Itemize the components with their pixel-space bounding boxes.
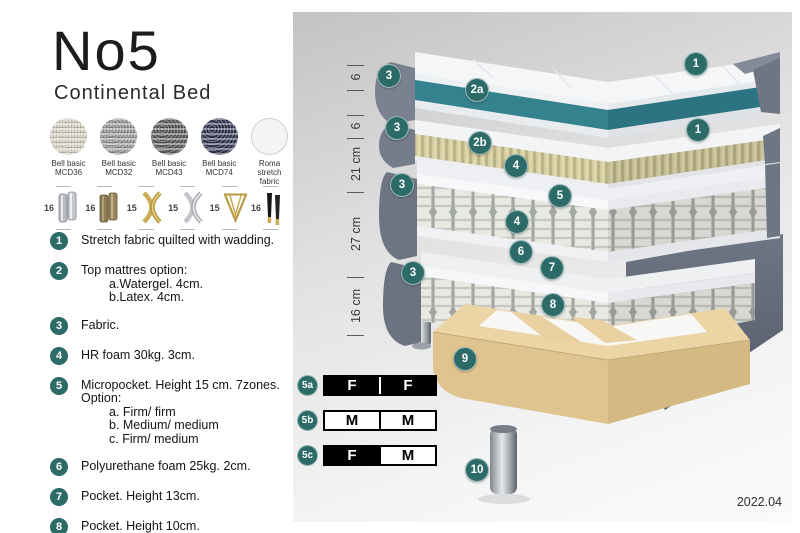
leg-option-tapered-black-gold: 16 xyxy=(251,184,290,232)
dimension-dash xyxy=(97,229,112,230)
dimension-dash xyxy=(263,186,278,187)
page: No5 Continental Bed Bell basicMCD36Bell … xyxy=(0,0,800,533)
leg-height-label: 15 xyxy=(210,203,220,213)
firmness-cell: F xyxy=(381,377,435,394)
feature-sub-option: a. Firm/ firm xyxy=(109,406,294,420)
fabric-swatch-circle xyxy=(251,118,288,155)
layer-marker-4: 4 xyxy=(504,154,528,178)
feature-number-badge: 1 xyxy=(50,232,68,250)
feature-main-text: Pocket. Height 10cm. xyxy=(81,520,200,533)
dimension-tick xyxy=(347,138,364,139)
dimension-label: 6 xyxy=(349,123,363,130)
dimension-dash xyxy=(180,186,195,187)
layer-marker-8: 8 xyxy=(541,293,565,317)
feature-number-badge: 7 xyxy=(50,488,68,506)
feature-sub-option: a.Watergel. 4cm. xyxy=(109,278,203,292)
dimension-dash xyxy=(56,229,71,230)
layer-marker-3: 3 xyxy=(401,261,425,285)
feature-text: Pocket. Height 13cm. xyxy=(81,488,200,506)
feature-text: Pocket. Height 10cm. xyxy=(81,518,200,533)
fabric-swatch-line2: MCD74 xyxy=(202,168,236,177)
fabric-swatch-line2: MCD36 xyxy=(51,168,85,177)
feature-number-badge: 8 xyxy=(50,518,68,533)
fabric-swatch-label: Bell basicMCD74 xyxy=(202,159,236,177)
leg-height-label: 15 xyxy=(168,203,178,213)
dimension-dash xyxy=(139,229,154,230)
fabric-swatches: Bell basicMCD36Bell basicMCD32Bell basic… xyxy=(46,118,292,186)
leg-height-label: 16 xyxy=(251,203,261,213)
dimension-dash xyxy=(139,186,154,187)
fabric-swatch-label: Bell basicMCD32 xyxy=(102,159,136,177)
fabric-swatch: Romastretch fabric xyxy=(247,118,292,186)
layer-marker-3: 3 xyxy=(390,173,414,197)
fabric-swatch-line2: MCD32 xyxy=(102,168,136,177)
firmness-cell: M xyxy=(325,412,379,429)
dimension-tick xyxy=(347,90,364,91)
dimension-dash xyxy=(222,186,237,187)
fabric-swatch-label: Bell basicMCD36 xyxy=(51,159,85,177)
feature-sub-option: c. Firm/ medium xyxy=(109,433,294,447)
feature-text: Stretch fabric quilted with wadding. xyxy=(81,232,274,250)
layer-marker-1: 1 xyxy=(684,52,708,76)
page-subtitle: Continental Bed xyxy=(54,82,211,105)
feature-number-badge: 6 xyxy=(50,458,68,476)
firmness-tables: 5aFF5bMM5cFM xyxy=(297,375,437,480)
tapered-black-gold-leg-icon xyxy=(263,190,285,226)
layer-marker-2a: 2a xyxy=(465,78,489,102)
leg-options: 16 16 xyxy=(44,184,290,232)
leg-option-cylinder-silver: 16 xyxy=(44,184,83,232)
fabric-swatch-circle xyxy=(50,118,87,155)
layer-marker-4: 4 xyxy=(505,210,529,234)
fabric-swatch-line1: Bell basic xyxy=(102,159,136,168)
feature-main-text: Polyurethane foam 25kg. 2cm. xyxy=(81,460,251,474)
cylinder-silver-leg-icon xyxy=(56,190,80,226)
firmness-cell: F xyxy=(325,377,379,394)
firmness-table: MM xyxy=(323,410,437,431)
firmness-row-5b: 5bMM xyxy=(297,410,437,431)
feature-text: Polyurethane foam 25kg. 2cm. xyxy=(81,458,251,476)
dimension-label: 6 xyxy=(349,74,363,81)
fabric-swatch: Bell basicMCD36 xyxy=(46,118,91,186)
cylinder-bronze-leg-icon xyxy=(97,190,121,226)
feature-number-badge: 3 xyxy=(50,317,68,335)
feature-text: HR foam 30kg. 3cm. xyxy=(81,347,195,365)
cross-gold-leg-icon xyxy=(139,190,165,226)
feature-text: Micropocket. Height 15 cm. 7zones. Optio… xyxy=(81,377,294,447)
feature-main-text: Micropocket. Height 15 cm. 7zones. Optio… xyxy=(81,379,294,406)
feature-main-text: Pocket. Height 13cm. xyxy=(81,490,200,504)
feature-text: Fabric. xyxy=(81,317,119,335)
layer-marker-9: 9 xyxy=(453,347,477,371)
firmness-cell: M xyxy=(381,447,435,464)
fabric-swatch-circle xyxy=(100,118,137,155)
feature-item: 7Pocket. Height 13cm. xyxy=(50,488,294,506)
firmness-table: FM xyxy=(323,445,437,466)
feature-item: 3Fabric. xyxy=(50,317,294,335)
dimension-label: 27 cm xyxy=(349,217,363,251)
dimension-dash xyxy=(180,229,195,230)
leg-option-hairpin-gold: 15 xyxy=(210,184,249,232)
feature-item: 5Micropocket. Height 15 cm. 7zones. Opti… xyxy=(50,377,294,447)
fabric-swatch: Bell basicMCD43 xyxy=(147,118,192,186)
page-title: No5 xyxy=(52,18,161,83)
feature-sub-option: b.Latex. 4cm. xyxy=(109,291,203,305)
leg-height-label: 16 xyxy=(85,203,95,213)
layer-marker-2b: 2b xyxy=(468,131,492,155)
feature-main-text: Fabric. xyxy=(81,319,119,333)
firmness-cell: F xyxy=(325,447,379,464)
fabric-swatch-label: Romastretch fabric xyxy=(247,159,292,186)
fabric-swatch-circle xyxy=(201,118,238,155)
feature-list: 1Stretch fabric quilted with wadding.2To… xyxy=(50,232,294,533)
fabric-swatch-line1: Bell basic xyxy=(202,159,236,168)
firmness-cell: M xyxy=(381,412,435,429)
layer-marker-6: 6 xyxy=(509,240,533,264)
fabric-swatch: Bell basicMCD74 xyxy=(197,118,242,186)
feature-text: Top mattres option:a.Watergel. 4cm.b.Lat… xyxy=(81,262,203,305)
feature-sub-option: b. Medium/ medium xyxy=(109,419,294,433)
leg-option-cylinder-bronze: 16 xyxy=(85,184,124,232)
firmness-row-5c: 5cFM xyxy=(297,445,437,466)
dimension-tick xyxy=(347,277,364,278)
firmness-badge: 5b xyxy=(297,410,318,431)
feature-item: 4HR foam 30kg. 3cm. xyxy=(50,347,294,365)
dimension-dash xyxy=(56,186,71,187)
layer-marker-10: 10 xyxy=(465,458,489,482)
feature-item: 2Top mattres option:a.Watergel. 4cm.b.La… xyxy=(50,262,294,305)
firmness-row-5a: 5aFF xyxy=(297,375,437,396)
hairpin-gold-leg-icon xyxy=(222,190,249,226)
layer-marker-5: 5 xyxy=(548,184,572,208)
leg-height-label: 15 xyxy=(127,203,137,213)
firmness-badge: 5c xyxy=(297,445,318,466)
feature-main-text: Top mattres option: xyxy=(81,264,203,278)
feature-item: 1Stretch fabric quilted with wadding. xyxy=(50,232,294,250)
firmness-badge: 5a xyxy=(297,375,318,396)
layer-marker-7: 7 xyxy=(540,256,564,280)
version-label: 2022.04 xyxy=(737,495,782,509)
fabric-swatch-circle xyxy=(151,118,188,155)
leg-height-label: 16 xyxy=(44,203,54,213)
dimension-tick xyxy=(347,335,364,336)
diagram-panel: 6621 cm27 cm16 cm 312a32b143546738910 5a… xyxy=(293,12,792,522)
dimension-label: 21 cm xyxy=(349,147,363,181)
dimension-label: 16 cm xyxy=(349,289,363,323)
dimension-dash xyxy=(263,229,278,230)
fabric-swatch-label: Bell basicMCD43 xyxy=(152,159,186,177)
leg-option-cross-gold: 15 xyxy=(127,184,166,232)
dimension-dash xyxy=(97,186,112,187)
feature-main-text: HR foam 30kg. 3cm. xyxy=(81,349,195,363)
feature-number-badge: 5 xyxy=(50,377,68,395)
fabric-swatch-line1: Bell basic xyxy=(51,159,85,168)
leg-option-cross-silver: 15 xyxy=(168,184,207,232)
layer-marker-3: 3 xyxy=(385,116,409,140)
dimension-tick xyxy=(347,192,364,193)
cross-silver-leg-icon xyxy=(180,190,206,226)
feature-main-text: Stretch fabric quilted with wadding. xyxy=(81,234,274,248)
feature-item: 8Pocket. Height 10cm. xyxy=(50,518,294,533)
fabric-swatch-line1: Bell basic xyxy=(152,159,186,168)
dimension-tick xyxy=(347,115,364,116)
feature-number-badge: 4 xyxy=(50,347,68,365)
dimension-dash xyxy=(222,229,237,230)
fabric-swatch: Bell basicMCD32 xyxy=(96,118,141,186)
feature-item: 6Polyurethane foam 25kg. 2cm. xyxy=(50,458,294,476)
fabric-swatch-line2: MCD43 xyxy=(152,168,186,177)
layer-marker-1: 1 xyxy=(686,118,710,142)
feature-number-badge: 2 xyxy=(50,262,68,280)
dimension-tick xyxy=(347,65,364,66)
fabric-swatch-line1: Roma xyxy=(247,159,292,168)
info-panel: No5 Continental Bed Bell basicMCD36Bell … xyxy=(0,0,293,533)
firmness-table: FF xyxy=(323,375,437,396)
layer-marker-3: 3 xyxy=(377,64,401,88)
